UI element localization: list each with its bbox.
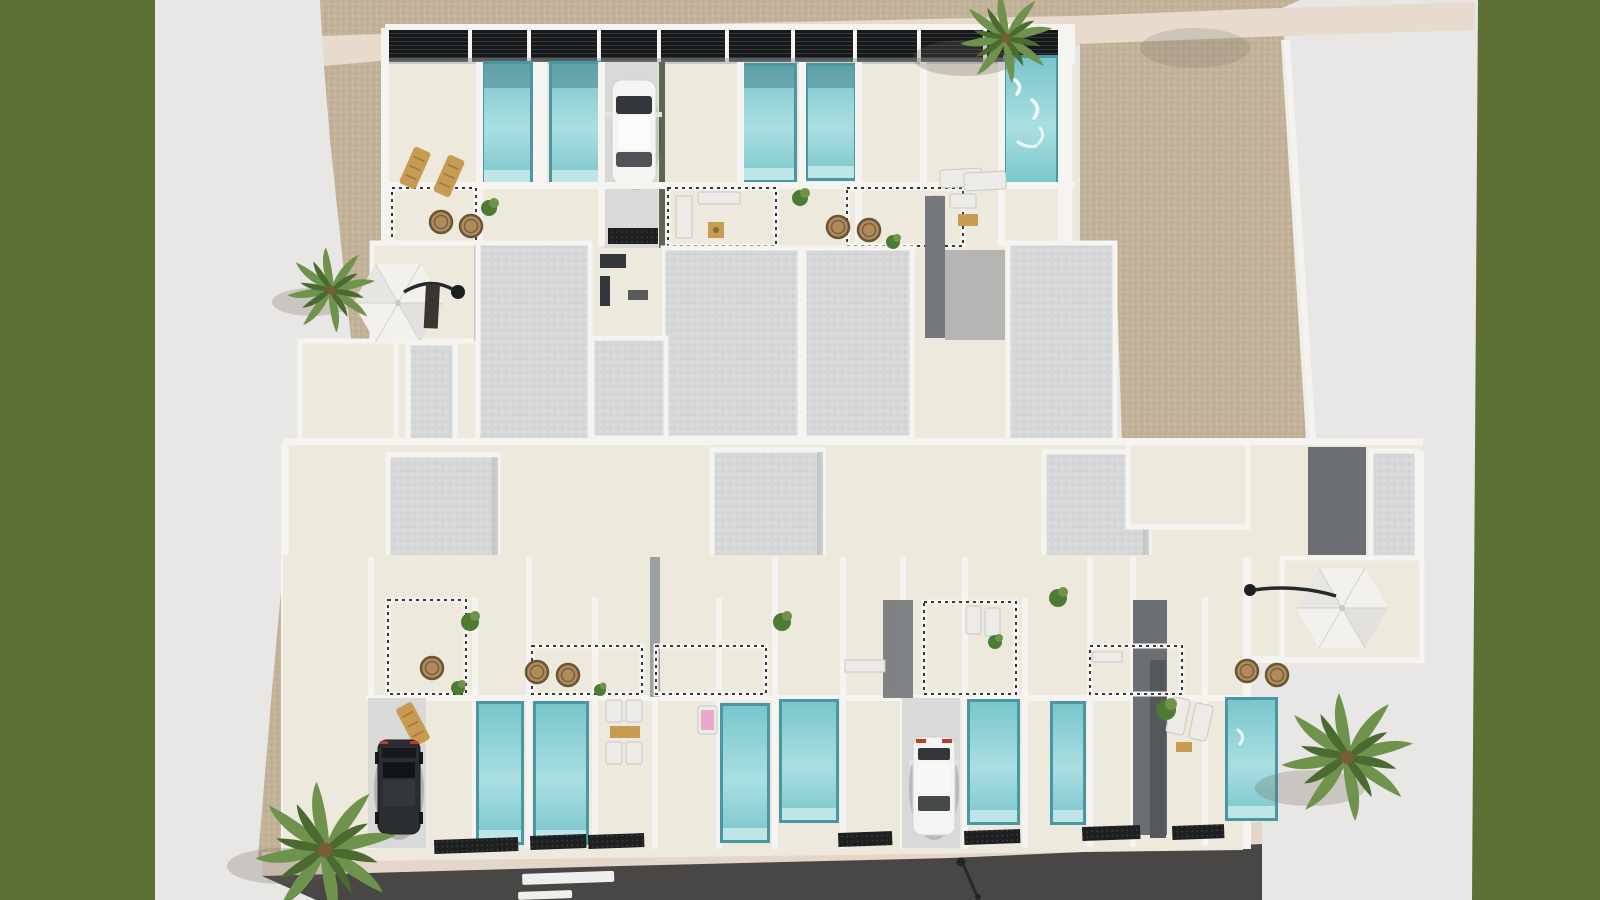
wicker-chair [858, 219, 880, 241]
flat-roof [408, 343, 455, 441]
pool [720, 703, 770, 843]
flat-roof [478, 243, 590, 441]
pool [549, 61, 601, 185]
upper-roof-square [1308, 447, 1417, 571]
walled-court [1128, 443, 1248, 527]
pool [476, 701, 524, 845]
pool [1050, 701, 1086, 825]
pool [779, 699, 839, 823]
wall-shadow [1150, 660, 1166, 838]
wicker-chair [1236, 660, 1258, 682]
flat-roof [663, 248, 800, 438]
white-sun-lounger [964, 171, 1007, 191]
lounger-with-pink-towel [698, 706, 717, 734]
flat-roof [804, 248, 912, 438]
lawn-left [0, 0, 155, 900]
car-dark [374, 740, 424, 840]
top-row-townhouses [300, 24, 1115, 443]
wicker-chair [430, 211, 452, 233]
flat-roof [592, 338, 666, 438]
wall-shadow [925, 196, 945, 338]
wicker-chair [1266, 664, 1288, 686]
courtyard [300, 341, 396, 441]
wicker-chair [421, 657, 443, 679]
palm-shadow [1140, 28, 1250, 68]
aerial-render [0, 0, 1600, 900]
wicker-chair [827, 216, 849, 238]
middle-north-wall [283, 438, 1423, 445]
wall-shadow [883, 600, 913, 698]
wall-shadow [945, 250, 1005, 340]
pool [533, 701, 589, 845]
car-white-bottom [909, 736, 959, 840]
pool [741, 63, 797, 183]
wicker-chair [526, 661, 548, 683]
side-table [1176, 742, 1192, 752]
car-white-top [606, 80, 662, 190]
hedge-strip [659, 62, 665, 250]
wicker-chair [460, 215, 482, 237]
lawn-right [1472, 0, 1600, 900]
pool [1225, 697, 1278, 821]
courtyard-facade [596, 248, 662, 336]
entry-mat [608, 228, 658, 244]
flat-roof [1008, 243, 1115, 441]
wicker-chair [557, 664, 579, 686]
pool [481, 61, 533, 185]
pool [967, 699, 1020, 825]
pool [805, 63, 857, 181]
